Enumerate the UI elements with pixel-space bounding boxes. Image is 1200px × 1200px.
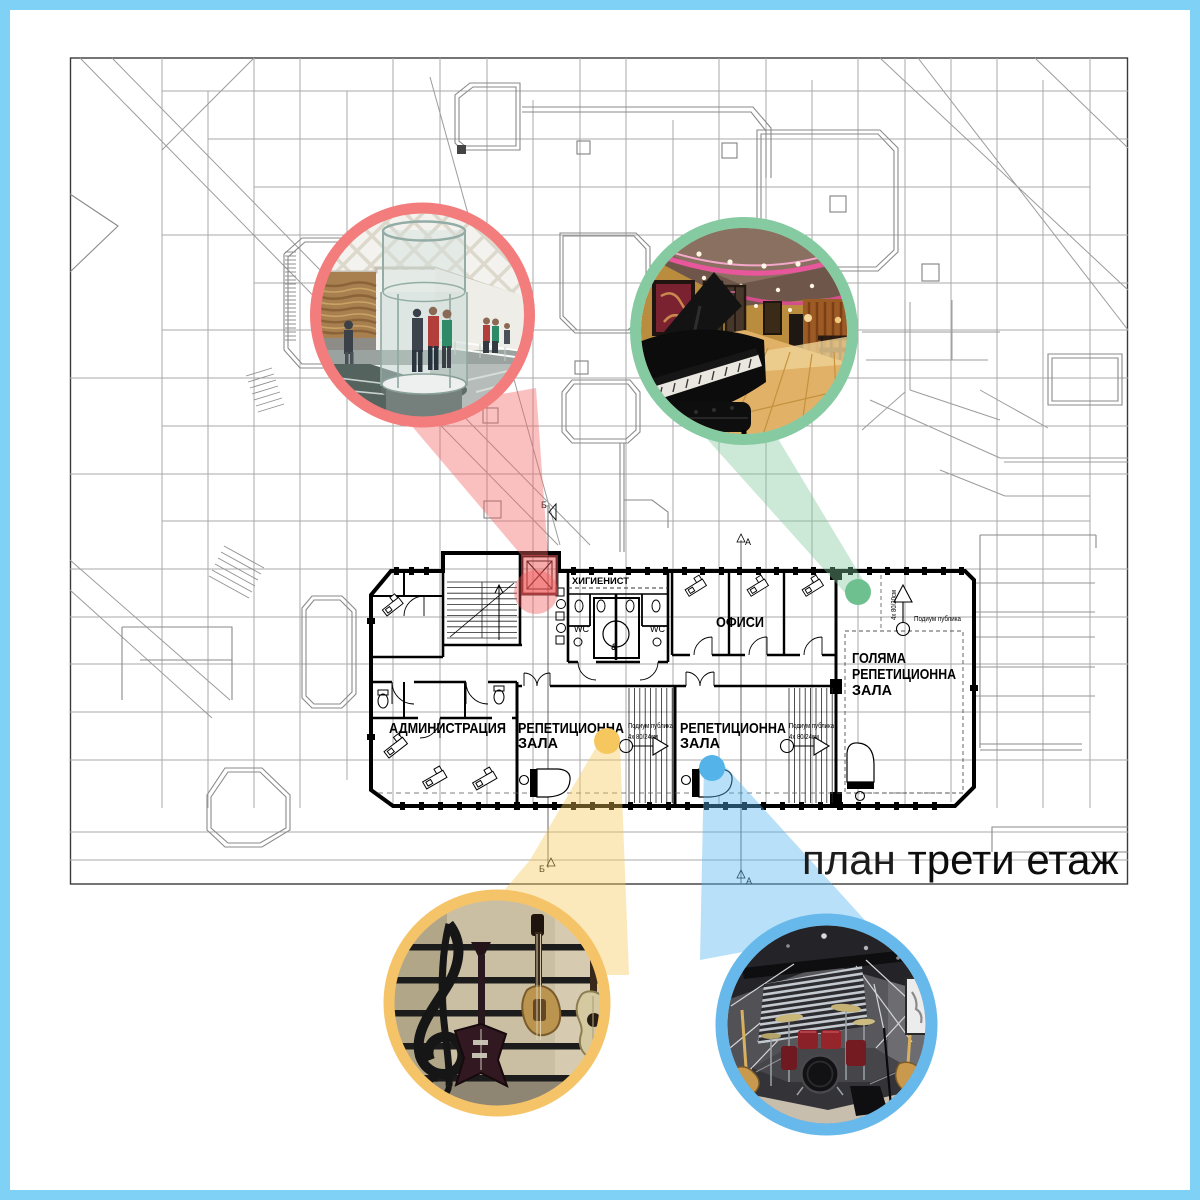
svg-text:Подиум публика: Подиум публика	[914, 615, 961, 623]
svg-text:ЗАЛА: ЗАЛА	[852, 682, 892, 699]
svg-text:WC: WC	[574, 624, 589, 634]
svg-text:план трети етаж: план трети етаж	[802, 836, 1119, 883]
svg-text:ЗАЛА: ЗАЛА	[680, 735, 720, 752]
svg-text:АДМИНИСТРАЦИЯ: АДМИНИСТРАЦИЯ	[389, 720, 506, 737]
svg-text:ОФИСИ: ОФИСИ	[716, 614, 764, 631]
svg-text:ХИГИЕНИСТ: ХИГИЕНИСТ	[572, 576, 630, 586]
svg-text:ЗАЛА: ЗАЛА	[518, 735, 558, 752]
svg-text:РЕПЕТИЦИОННА: РЕПЕТИЦИОННА	[852, 666, 956, 683]
svg-text:ГОЛЯМА: ГОЛЯМА	[852, 650, 906, 667]
svg-text:4х 80/24см: 4х 80/24см	[628, 734, 658, 741]
svg-text:А: А	[745, 537, 751, 547]
svg-text:WC: WC	[650, 624, 665, 634]
svg-text:4х 80/24см: 4х 80/24см	[789, 734, 819, 741]
svg-text:Подиум публика: Подиум публика	[789, 722, 834, 730]
svg-text:4х 80/20см: 4х 80/20см	[891, 590, 898, 620]
svg-text:Подиум публика: Подиум публика	[628, 722, 673, 730]
svg-text:&: &	[611, 642, 618, 652]
